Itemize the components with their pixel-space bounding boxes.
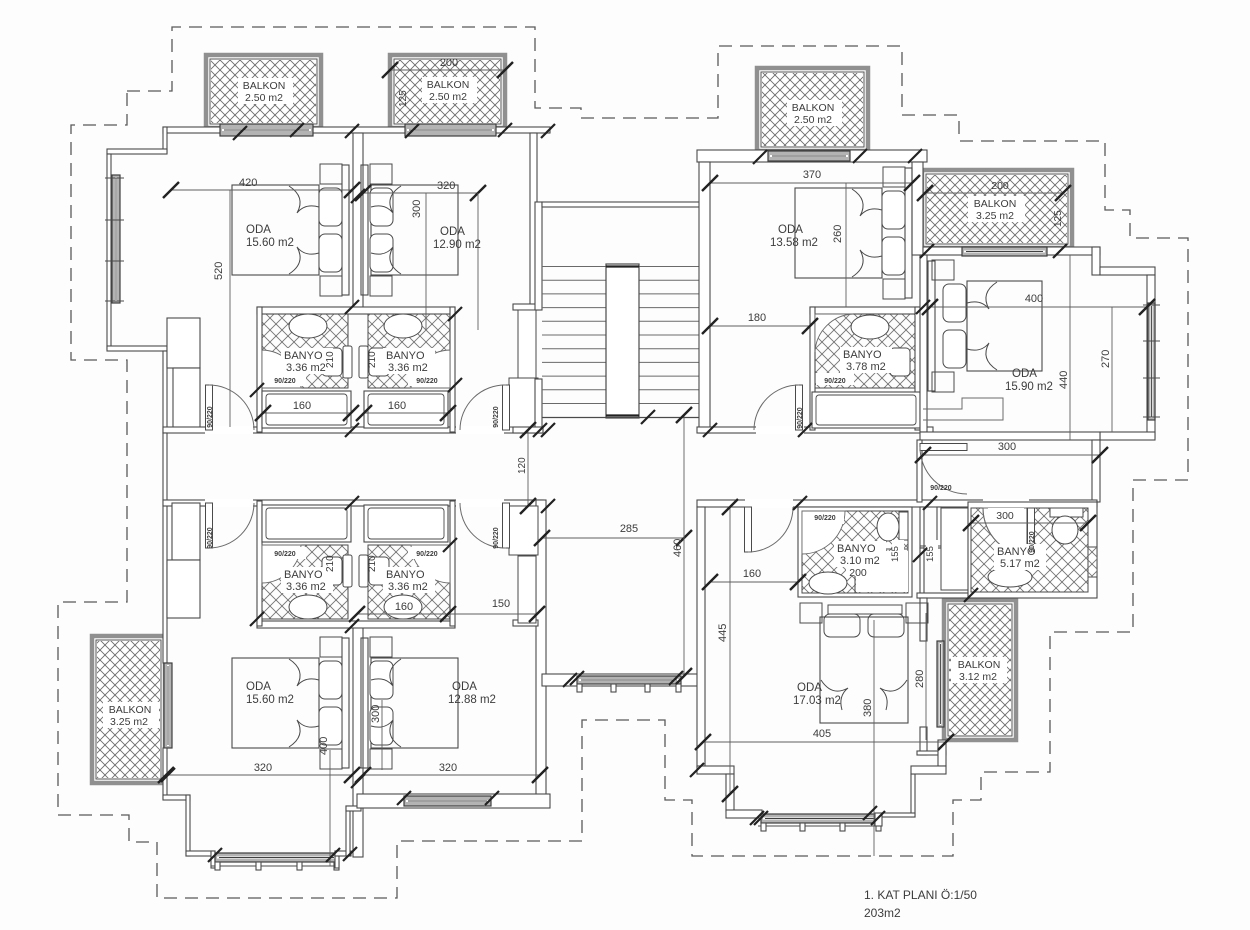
- svg-text:BALKON: BALKON: [109, 704, 152, 716]
- svg-text:120: 120: [517, 457, 528, 474]
- svg-text:ODA: ODA: [797, 682, 822, 694]
- svg-text:460: 460: [672, 539, 684, 557]
- svg-text:3.12 m2: 3.12 m2: [959, 671, 997, 683]
- svg-text:BANYO: BANYO: [284, 350, 323, 362]
- svg-text:13.58 m2: 13.58 m2: [770, 237, 818, 249]
- svg-text:210: 210: [325, 555, 336, 572]
- svg-text:300: 300: [370, 705, 382, 723]
- svg-text:15.60 m2: 15.60 m2: [246, 237, 294, 249]
- svg-text:BANYO: BANYO: [284, 569, 323, 581]
- svg-text:90/220: 90/220: [493, 527, 500, 549]
- svg-text:200: 200: [849, 567, 867, 579]
- svg-text:210: 210: [367, 351, 378, 368]
- svg-text:260: 260: [832, 225, 844, 243]
- svg-text:90/220: 90/220: [493, 406, 500, 428]
- svg-text:90/220: 90/220: [207, 527, 214, 549]
- svg-text:370: 370: [803, 169, 821, 181]
- svg-text:BALKON: BALKON: [958, 659, 1001, 671]
- svg-text:400: 400: [1025, 293, 1043, 305]
- svg-text:90/220: 90/220: [416, 378, 438, 385]
- svg-text:270: 270: [1100, 350, 1112, 368]
- svg-text:3.25 m2: 3.25 m2: [110, 716, 148, 728]
- svg-text:90/220: 90/220: [207, 406, 214, 428]
- svg-text:BANYO: BANYO: [843, 349, 882, 361]
- svg-text:12.90 m2: 12.90 m2: [433, 239, 481, 251]
- svg-text:203m2: 203m2: [864, 906, 901, 920]
- svg-text:3.25 m2: 3.25 m2: [976, 210, 1014, 222]
- svg-text:520: 520: [213, 262, 225, 280]
- svg-text:445: 445: [717, 624, 729, 642]
- svg-text:200: 200: [440, 57, 458, 69]
- svg-text:405: 405: [813, 728, 831, 740]
- svg-text:160: 160: [395, 601, 413, 613]
- svg-text:3.10 m2: 3.10 m2: [840, 555, 880, 567]
- svg-text:2.50 m2: 2.50 m2: [794, 114, 832, 126]
- svg-text:ODA: ODA: [246, 224, 271, 236]
- svg-text:420: 420: [239, 177, 257, 189]
- svg-text:160: 160: [743, 568, 761, 580]
- svg-text:320: 320: [254, 762, 272, 774]
- svg-text:90/220: 90/220: [416, 551, 438, 558]
- svg-text:90/220: 90/220: [797, 407, 804, 429]
- svg-text:1. KAT PLANI Ö:1/50: 1. KAT PLANI Ö:1/50: [864, 888, 977, 902]
- svg-text:285: 285: [620, 523, 638, 535]
- svg-text:3.78 m2: 3.78 m2: [846, 361, 886, 373]
- svg-text:BALKON: BALKON: [974, 198, 1017, 210]
- svg-text:12.88 m2: 12.88 m2: [448, 694, 496, 706]
- svg-text:160: 160: [388, 400, 406, 412]
- svg-text:210: 210: [325, 351, 336, 368]
- svg-text:150: 150: [492, 598, 510, 610]
- svg-text:15.90 m2: 15.90 m2: [1005, 381, 1053, 393]
- svg-text:17.03 m2: 17.03 m2: [793, 695, 841, 707]
- svg-text:BALKON: BALKON: [792, 102, 835, 114]
- svg-text:BALKON: BALKON: [243, 80, 286, 92]
- svg-text:180: 180: [748, 312, 766, 324]
- svg-text:90/220: 90/220: [824, 378, 846, 385]
- svg-text:ODA: ODA: [246, 681, 271, 693]
- svg-text:5.17 m2: 5.17 m2: [1000, 558, 1040, 570]
- svg-text:210: 210: [367, 555, 378, 572]
- svg-text:155: 155: [890, 546, 901, 562]
- svg-text:2.50 m2: 2.50 m2: [245, 92, 283, 104]
- svg-text:160: 160: [293, 400, 311, 412]
- svg-text:125: 125: [1053, 210, 1064, 227]
- svg-text:400: 400: [318, 737, 330, 755]
- svg-text:320: 320: [437, 180, 455, 192]
- svg-text:15.60 m2: 15.60 m2: [246, 694, 294, 706]
- svg-text:BANYO: BANYO: [386, 569, 425, 581]
- svg-text:BALKON: BALKON: [427, 79, 470, 91]
- svg-text:3.36 m2: 3.36 m2: [286, 581, 326, 593]
- svg-text:ODA: ODA: [778, 224, 803, 236]
- svg-text:BANYO: BANYO: [386, 350, 425, 362]
- svg-text:3.36 m2: 3.36 m2: [388, 581, 428, 593]
- svg-text:3.36 m2: 3.36 m2: [388, 362, 428, 374]
- svg-text:ODA: ODA: [452, 681, 477, 693]
- svg-text:3.36 m2: 3.36 m2: [286, 362, 326, 374]
- svg-text:300: 300: [411, 200, 423, 218]
- svg-text:90/220: 90/220: [1029, 531, 1036, 553]
- svg-text:ODA: ODA: [1012, 368, 1037, 380]
- svg-text:2.50 m2: 2.50 m2: [429, 91, 467, 103]
- svg-text:200: 200: [991, 180, 1009, 192]
- svg-text:90/220: 90/220: [814, 515, 836, 522]
- svg-text:320: 320: [439, 762, 457, 774]
- svg-text:ODA: ODA: [440, 226, 465, 238]
- svg-text:300: 300: [996, 510, 1014, 522]
- svg-text:90/220: 90/220: [930, 485, 952, 492]
- svg-text:90/220: 90/220: [274, 551, 296, 558]
- svg-text:BANYO: BANYO: [837, 543, 876, 555]
- svg-text:90/220: 90/220: [274, 378, 296, 385]
- svg-text:440: 440: [1058, 371, 1070, 389]
- svg-text:125: 125: [398, 90, 409, 107]
- svg-text:280: 280: [914, 670, 926, 688]
- svg-text:380: 380: [862, 699, 874, 717]
- svg-text:300: 300: [998, 441, 1016, 453]
